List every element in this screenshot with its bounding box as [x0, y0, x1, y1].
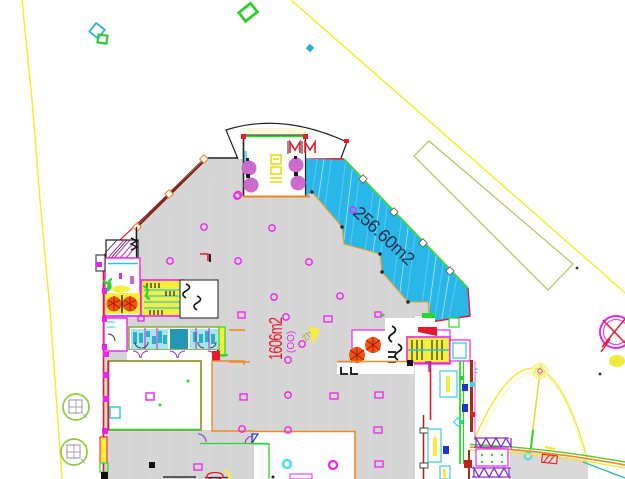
svg-text:1606m2: 1606m2 [266, 317, 287, 360]
svg-text:(OO): (OO) [286, 331, 297, 353]
